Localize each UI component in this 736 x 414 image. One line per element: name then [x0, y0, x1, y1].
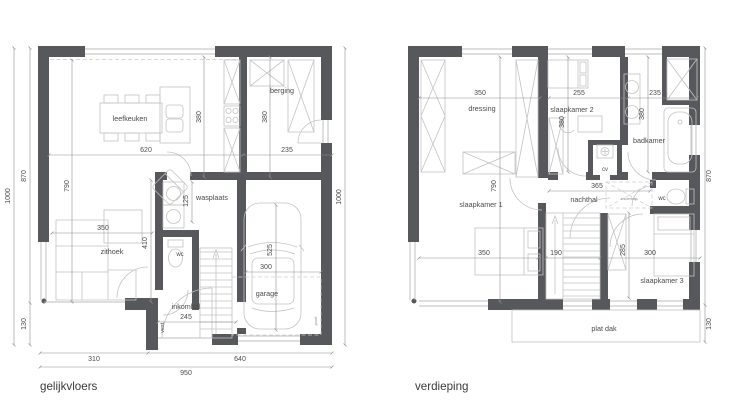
- room-label-slaapkamer1: slaapkamer 1: [459, 200, 502, 209]
- dim-245: 245: [180, 314, 192, 321]
- ground-floor-plan: leefkeuken berging wasplaats zithoek wc …: [5, 46, 345, 393]
- room-label-dressing: dressing: [468, 104, 495, 113]
- dim-130-right: 130: [706, 318, 713, 330]
- dim-300-garage: 300: [260, 264, 272, 271]
- dim-310: 310: [88, 356, 100, 363]
- dim-350-sk1: 350: [478, 250, 490, 257]
- room-label-vest: vest.: [160, 321, 166, 332]
- dim-380-kitchen: 380: [196, 111, 203, 123]
- garage-door-note: poort: [314, 316, 318, 326]
- dim-365: 365: [591, 183, 603, 190]
- attic-hatch: [606, 182, 652, 208]
- room-label-berging: berging: [270, 86, 294, 95]
- dim-950: 950: [180, 370, 192, 377]
- room-label-cv: cv: [602, 167, 608, 173]
- attic-hatch-label: zoldertrap: [621, 197, 638, 201]
- room-label-wasplaats: wasplaats: [195, 193, 228, 202]
- stairs-ground: [200, 248, 232, 338]
- rug: [104, 210, 142, 243]
- floorplan-drawing: leefkeuken berging wasplaats zithoek wc …: [0, 0, 736, 414]
- upper-floor-title: verdieping: [415, 380, 469, 393]
- dim-525: 525: [267, 244, 274, 256]
- dim-1000-right: 1000: [336, 189, 343, 205]
- room-label-slaapkamer3: slaapkamer 3: [640, 276, 683, 285]
- room-label-garage: garage: [256, 289, 278, 298]
- dim-285: 285: [620, 244, 627, 256]
- dim-300-sk3: 300: [644, 250, 656, 257]
- room-label-slaapkamer2: slaapkamer 2: [550, 105, 593, 114]
- room-label-wc-ground: wc: [175, 252, 183, 258]
- sofa: [56, 220, 136, 300]
- dim-620: 620: [140, 147, 152, 154]
- dim-410: 410: [142, 237, 149, 249]
- room-label-badkamer: badkamer: [633, 136, 666, 145]
- dim-380-bad: 380: [639, 108, 646, 120]
- berging-cabinets: [250, 60, 314, 132]
- dim-235: 235: [281, 147, 293, 154]
- room-label-nachthal: nachthal: [570, 195, 598, 204]
- dim-640: 640: [234, 356, 246, 363]
- dim-1000-left: 1000: [5, 188, 12, 204]
- bedroom2-furniture: [548, 60, 602, 174]
- floorplan-sheet: leefkeuken berging wasplaats zithoek wc …: [0, 0, 736, 414]
- dim-870-left: 870: [21, 170, 28, 182]
- dim-870-right: 870: [706, 170, 713, 182]
- dressing-wardrobes: [421, 60, 538, 177]
- room-label-leefkeuken: leefkeuken: [113, 114, 148, 123]
- dim-350-zithoek: 350: [97, 225, 109, 232]
- dim-130-left: 130: [21, 318, 28, 330]
- dim-235-bad: 235: [649, 90, 661, 97]
- dim-190: 190: [550, 250, 562, 257]
- dim-380-sk2: 380: [559, 116, 566, 128]
- bathroom-fixtures: [624, 59, 697, 172]
- upper-walls: [408, 46, 700, 310]
- dim-125: 125: [183, 195, 190, 207]
- dim-255: 255: [573, 90, 585, 97]
- ground-floor-title: gelijkvloers: [40, 380, 98, 393]
- dim-790-sk1: 790: [491, 180, 498, 192]
- room-label-zithoek: zithoek: [101, 247, 124, 256]
- flat-roof-label: plat dak: [591, 324, 617, 333]
- room-label-wc-upper: wc: [657, 196, 665, 202]
- upper-floor-plan: dressing slaapkamer 2 badkamer slaapkame…: [408, 46, 713, 393]
- cv-boiler: [597, 145, 613, 158]
- dim-790: 790: [64, 180, 71, 192]
- dim-380-berging: 380: [262, 111, 269, 123]
- dim-350-dressing: 350: [474, 90, 486, 97]
- room-label-inkomhal: inkomhal: [172, 302, 201, 311]
- car: [241, 203, 304, 329]
